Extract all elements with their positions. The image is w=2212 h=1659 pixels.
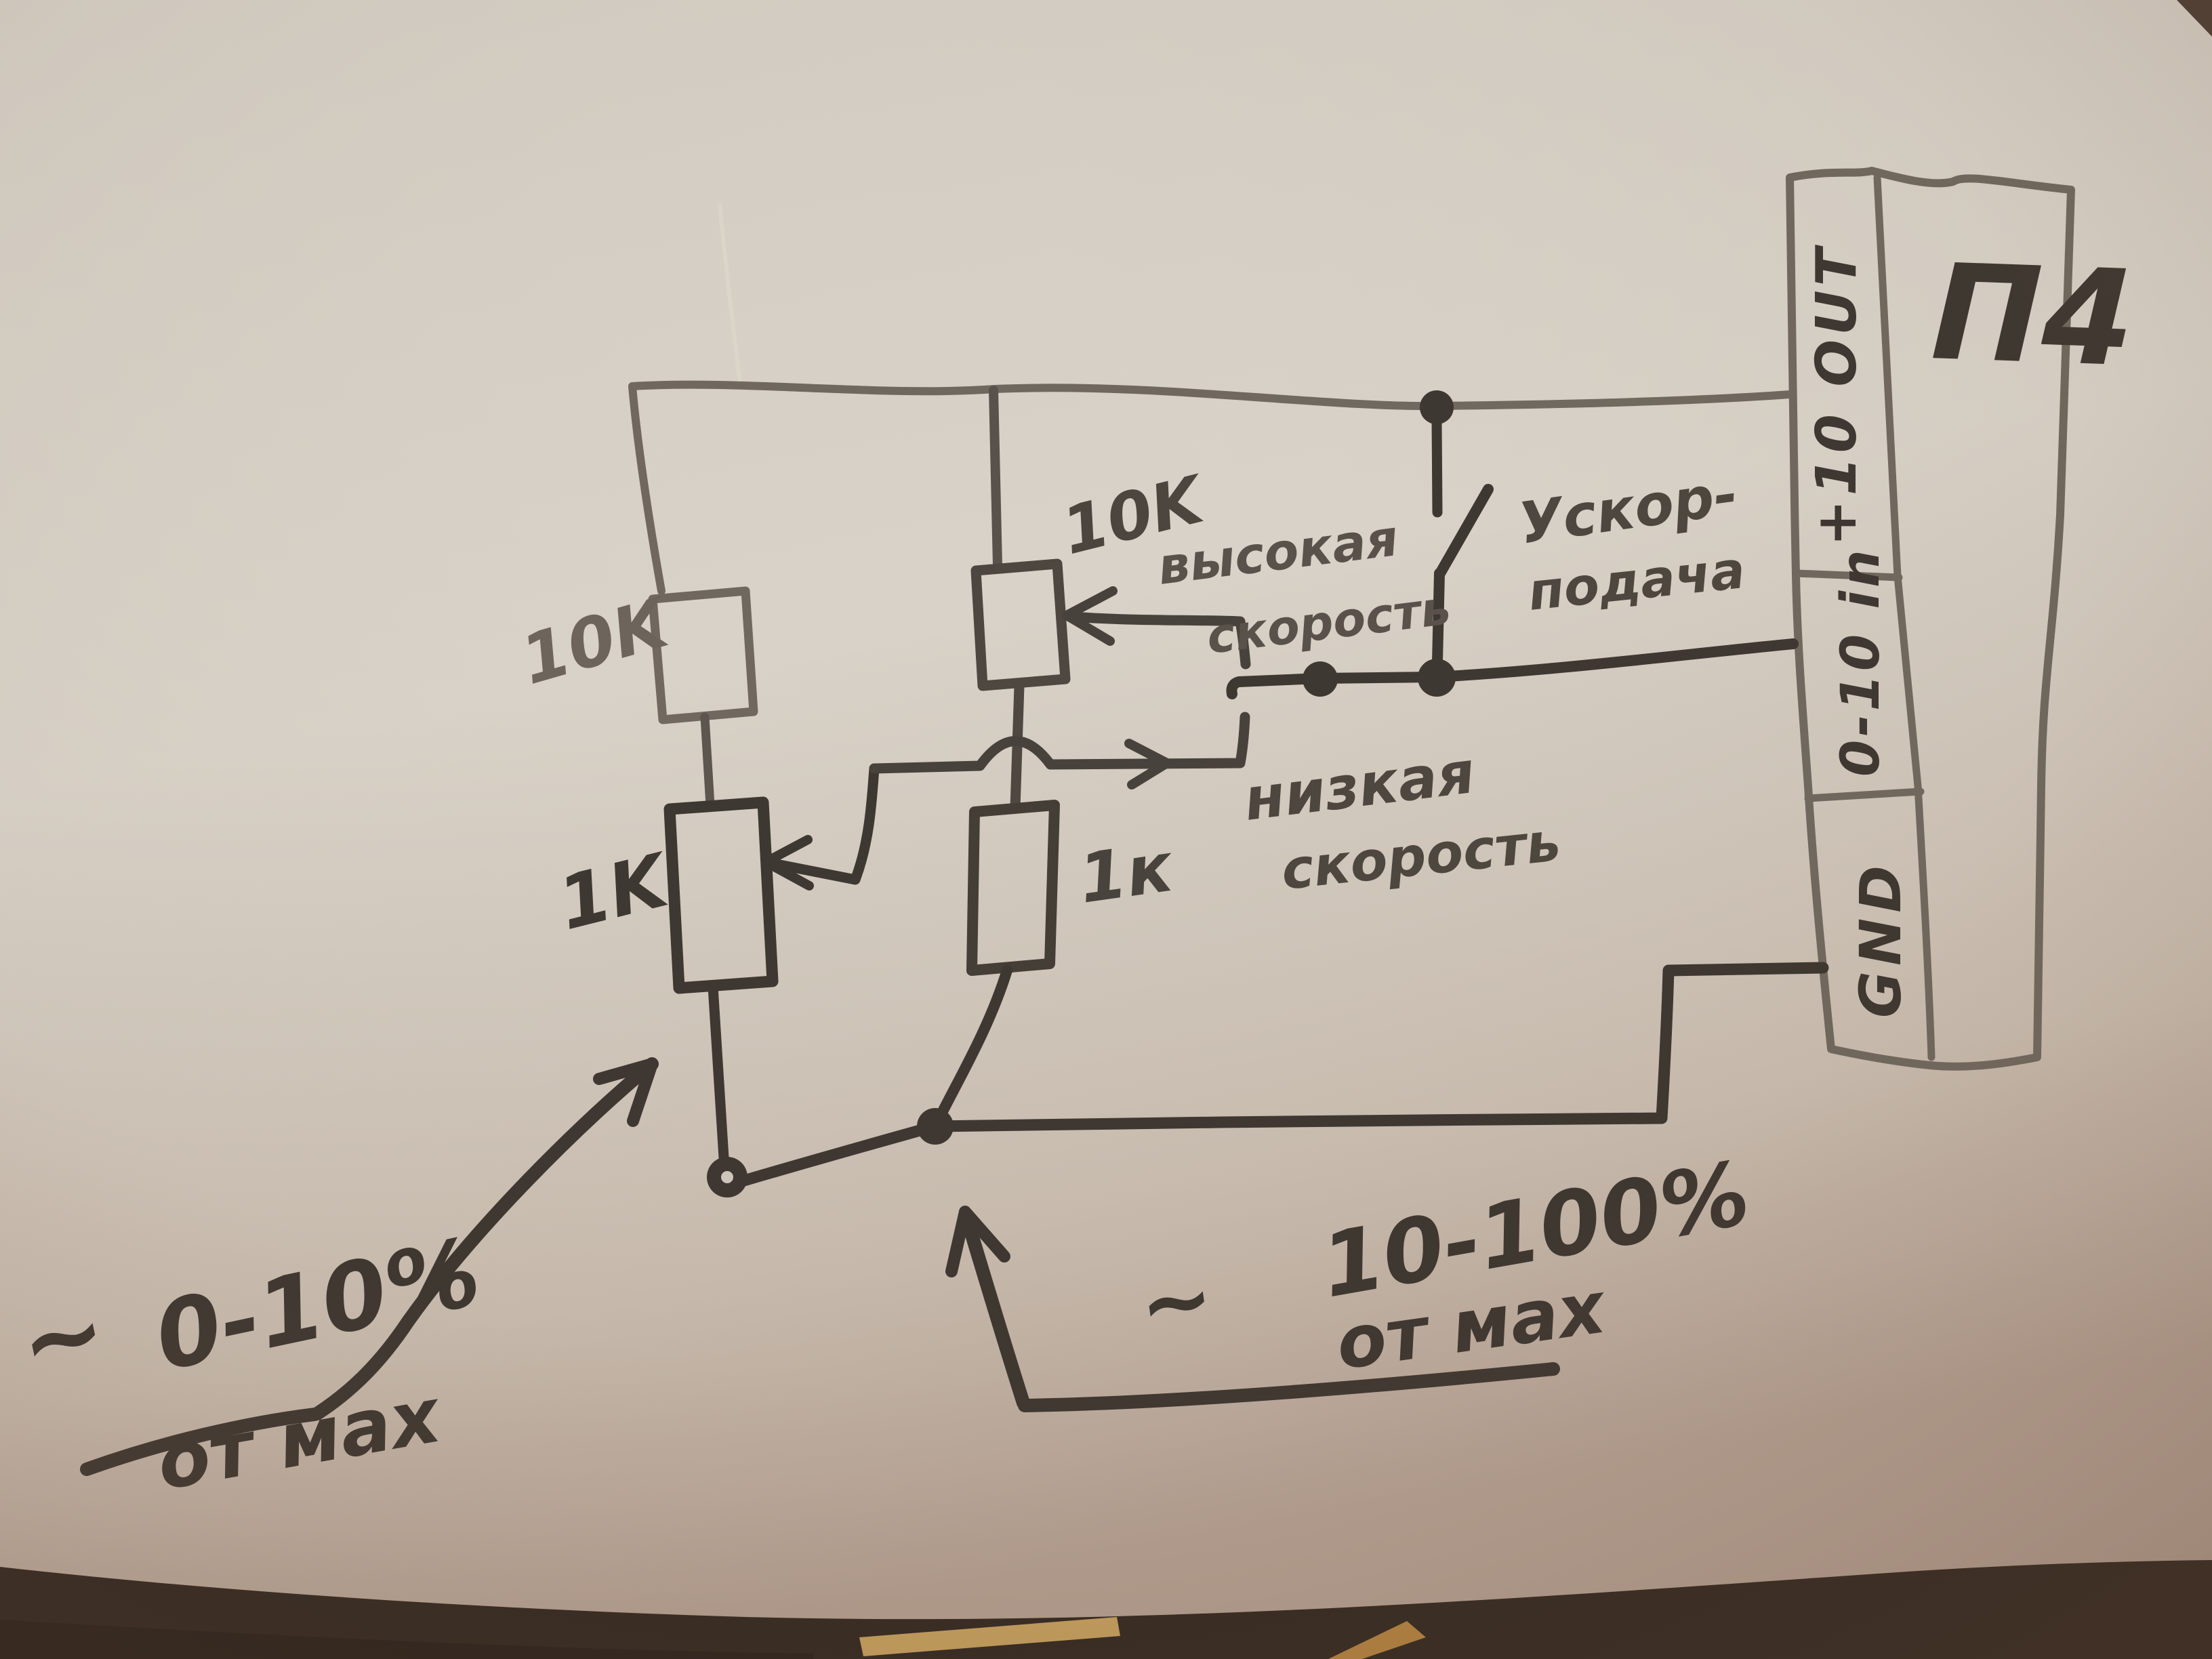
photo-of-paper-schematic: +10 OUT 0-10 in GND П4 <box>0 0 2212 1659</box>
schematic-canvas: +10 OUT 0-10 in GND П4 <box>0 0 2212 1659</box>
photo-vignette <box>0 0 2212 1659</box>
background-surroundings <box>0 0 2212 1659</box>
